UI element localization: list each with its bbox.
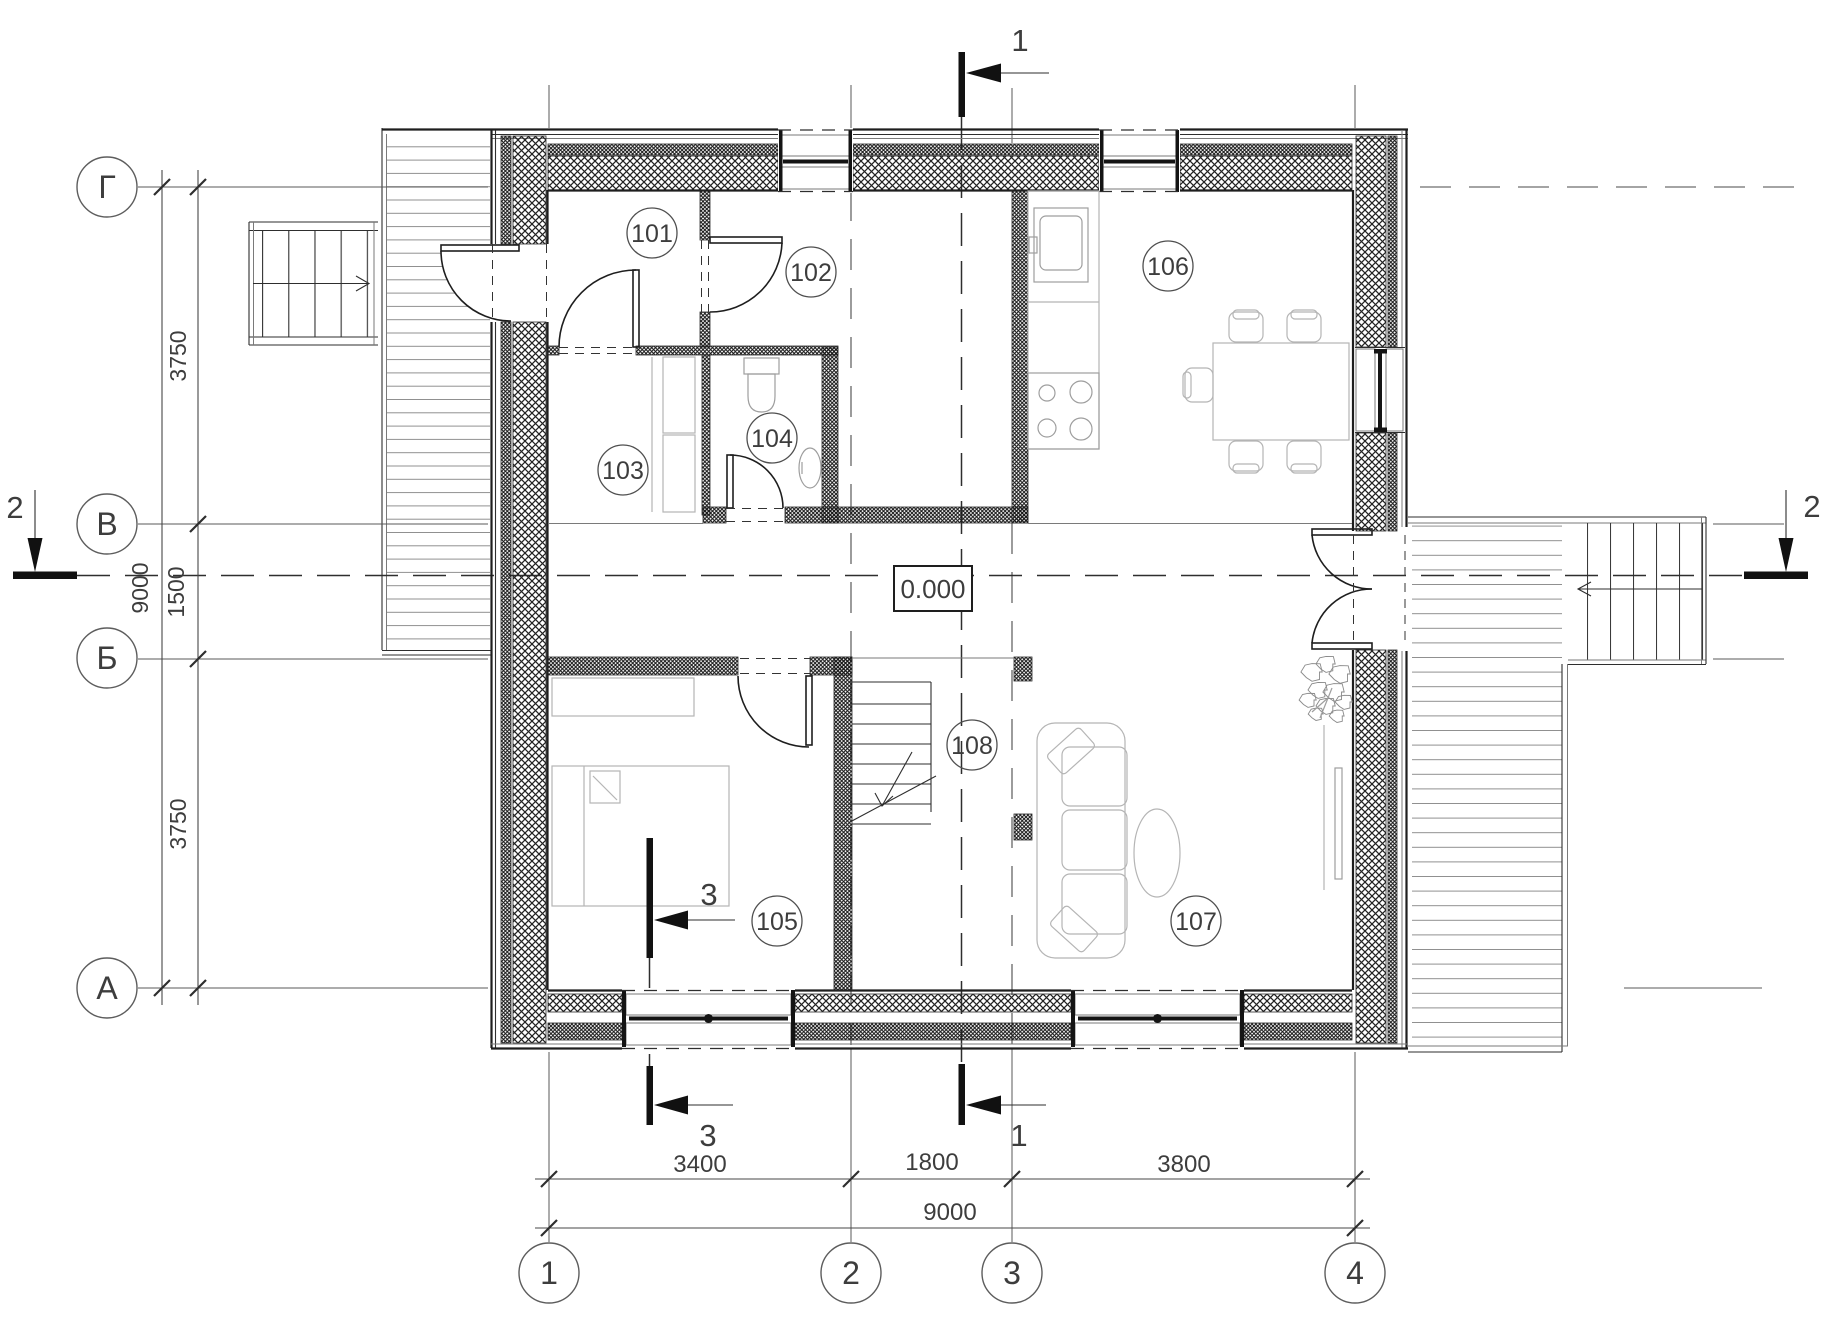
svg-text:3750: 3750: [165, 798, 191, 849]
svg-text:4: 4: [1346, 1255, 1364, 1291]
svg-text:102: 102: [790, 259, 832, 287]
svg-text:106: 106: [1147, 253, 1189, 281]
svg-text:3400: 3400: [673, 1151, 726, 1178]
svg-text:Б: Б: [97, 640, 118, 676]
svg-text:104: 104: [751, 425, 793, 453]
svg-text:2: 2: [842, 1255, 860, 1291]
svg-text:3750: 3750: [165, 330, 191, 381]
svg-text:1800: 1800: [905, 1149, 958, 1176]
svg-text:1: 1: [1011, 23, 1028, 58]
svg-text:1: 1: [540, 1255, 558, 1291]
svg-text:0.000: 0.000: [900, 574, 965, 604]
svg-text:9000: 9000: [127, 562, 153, 613]
svg-text:1500: 1500: [163, 566, 189, 617]
svg-text:В: В: [96, 506, 117, 542]
svg-text:3: 3: [699, 1118, 716, 1153]
svg-text:108: 108: [951, 732, 993, 760]
svg-text:103: 103: [602, 457, 644, 485]
svg-text:Г: Г: [98, 169, 115, 205]
svg-text:А: А: [96, 970, 118, 1006]
svg-text:2: 2: [6, 490, 23, 525]
svg-text:3: 3: [700, 877, 717, 912]
svg-text:107: 107: [1175, 908, 1217, 936]
svg-text:3800: 3800: [1157, 1151, 1210, 1178]
svg-text:101: 101: [631, 220, 673, 248]
svg-text:9000: 9000: [923, 1199, 976, 1226]
svg-text:105: 105: [756, 908, 798, 936]
svg-text:1: 1: [1010, 1118, 1027, 1153]
svg-text:3: 3: [1003, 1255, 1021, 1291]
svg-text:2: 2: [1803, 489, 1820, 524]
